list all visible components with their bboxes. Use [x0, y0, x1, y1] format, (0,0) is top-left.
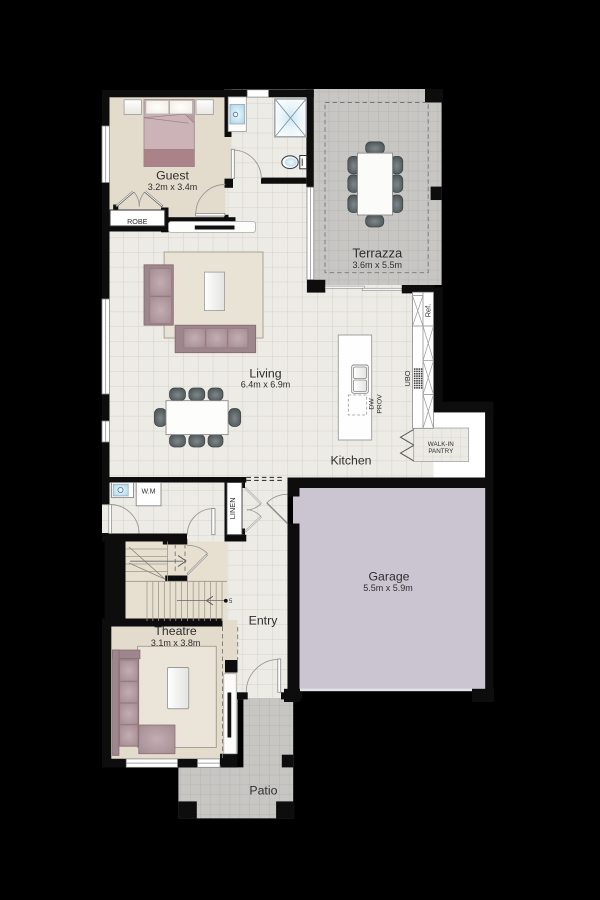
svg-text:LINEN: LINEN [228, 497, 237, 519]
svg-text:3.2m x 3.4m: 3.2m x 3.4m [148, 182, 198, 192]
svg-text:WALK-IN: WALK-IN [428, 441, 454, 448]
svg-text:Ref.: Ref. [424, 304, 433, 318]
svg-text:Kitchen: Kitchen [330, 453, 371, 467]
svg-text:Garage: Garage [368, 570, 409, 584]
svg-text:Terrazza: Terrazza [352, 245, 403, 260]
svg-text:3.6m x 5.5m: 3.6m x 5.5m [353, 260, 403, 270]
svg-text:W.M: W.M [142, 489, 156, 496]
svg-text:UBO: UBO [403, 370, 412, 386]
svg-text:ROBE: ROBE [127, 217, 148, 226]
svg-text:6.4m x 6.9m: 6.4m x 6.9m [241, 380, 291, 390]
svg-text:5.5m x 5.9m: 5.5m x 5.9m [363, 583, 413, 593]
svg-text:3.1m x 3.8m: 3.1m x 3.8m [151, 638, 201, 648]
svg-text:PROV: PROV [377, 394, 384, 414]
svg-text:PANTRY: PANTRY [428, 448, 454, 455]
svg-text:Patio: Patio [249, 784, 277, 798]
svg-text:Theatre: Theatre [154, 624, 197, 638]
svg-text:Living: Living [249, 367, 281, 381]
svg-text:DW: DW [369, 398, 376, 410]
svg-text:Guest: Guest [156, 169, 189, 183]
svg-text:Entry: Entry [249, 613, 279, 627]
